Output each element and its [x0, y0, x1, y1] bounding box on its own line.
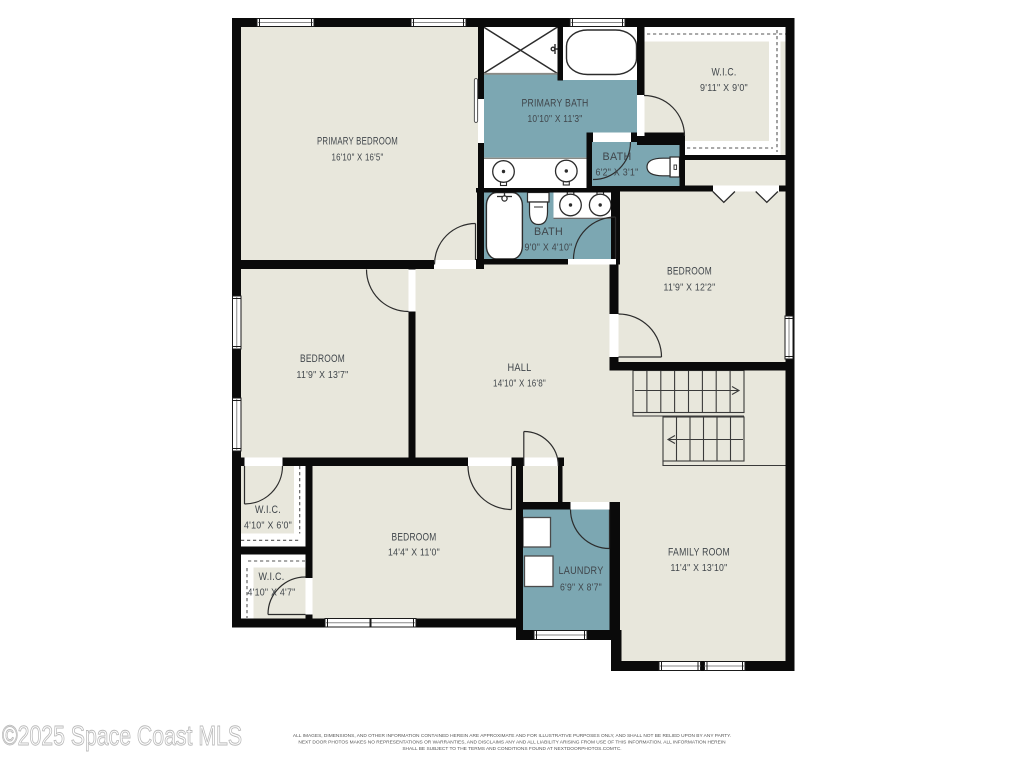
svg-text:HALL: HALL [508, 362, 532, 374]
svg-text:BEDROOM: BEDROOM [392, 532, 437, 544]
svg-text:9'0" X 4'10": 9'0" X 4'10" [525, 242, 573, 254]
svg-text:11'9" X 12'2": 11'9" X 12'2" [664, 282, 716, 294]
svg-text:©2025 Space Coast MLS: ©2025 Space Coast MLS [2, 720, 242, 751]
svg-text:4'10" X 4'7": 4'10" X 4'7" [248, 587, 296, 599]
svg-text:SHALL BE SUBJECT TO THE TERMS: SHALL BE SUBJECT TO THE TERMS AND CONDIT… [402, 746, 621, 752]
svg-text:LAUNDRY: LAUNDRY [559, 565, 604, 577]
svg-text:PRIMARY BATH: PRIMARY BATH [522, 98, 589, 110]
svg-text:11'4" X 13'10": 11'4" X 13'10" [671, 562, 728, 574]
svg-text:6'9" X 8'7": 6'9" X 8'7" [560, 582, 602, 594]
svg-text:10'10" X 11'3": 10'10" X 11'3" [528, 113, 583, 125]
svg-text:BEDROOM: BEDROOM [667, 266, 712, 278]
svg-text:6'2" X 3'1": 6'2" X 3'1" [596, 167, 639, 179]
svg-text:W.I.C.: W.I.C. [259, 571, 285, 583]
svg-text:BATH: BATH [603, 151, 632, 163]
svg-text:W.I.C.: W.I.C. [255, 504, 281, 516]
svg-text:BEDROOM: BEDROOM [300, 353, 345, 365]
svg-text:PRIMARY BEDROOM: PRIMARY BEDROOM [317, 136, 398, 148]
svg-text:14'10" X 16'8": 14'10" X 16'8" [493, 378, 546, 390]
svg-text:9'11" X 9'0": 9'11" X 9'0" [700, 82, 748, 94]
svg-text:16'10" X 16'5": 16'10" X 16'5" [332, 152, 384, 164]
svg-text:14'4" X 11'0": 14'4" X 11'0" [388, 547, 440, 559]
svg-text:NEXT DOOR PHOTOS MAKES NO REPR: NEXT DOOR PHOTOS MAKES NO REPRESENTATION… [298, 740, 726, 746]
svg-text:ALL IMAGES, DIMENSIONS, AND OT: ALL IMAGES, DIMENSIONS, AND OTHER INFORM… [293, 733, 731, 739]
svg-text:4'10" X 6'0": 4'10" X 6'0" [244, 520, 292, 532]
svg-text:W.I.C.: W.I.C. [712, 67, 737, 79]
svg-text:11'9" X 13'7": 11'9" X 13'7" [297, 369, 349, 381]
svg-text:FAMILY ROOM: FAMILY ROOM [668, 547, 730, 559]
svg-text:BATH: BATH [534, 226, 563, 238]
